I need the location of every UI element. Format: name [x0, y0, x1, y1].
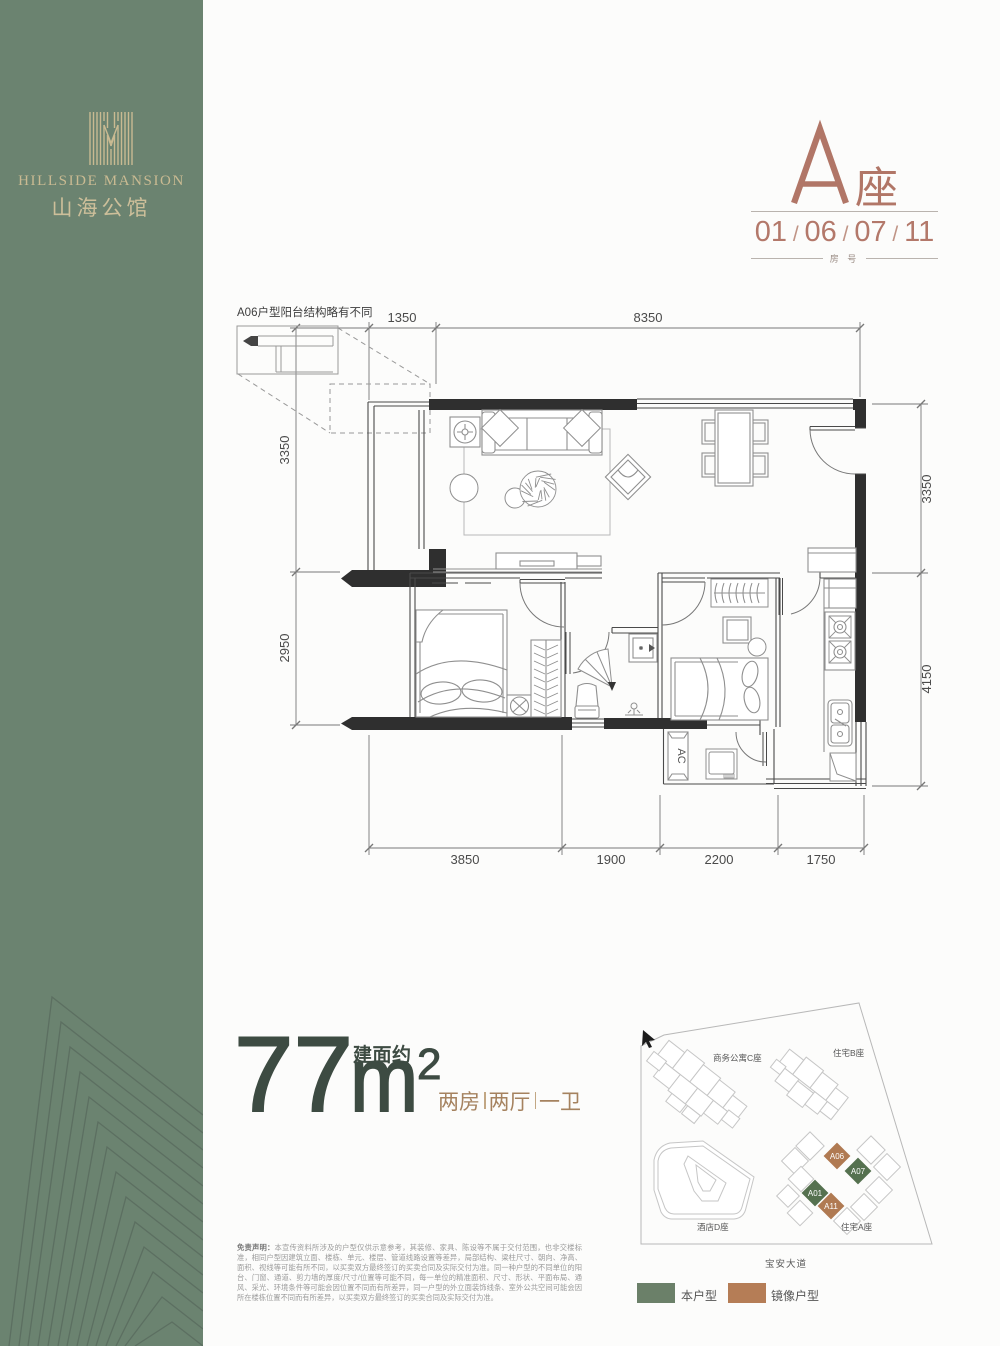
svg-text:4150: 4150 — [919, 665, 934, 694]
svg-text:2200: 2200 — [705, 852, 734, 867]
svg-text:A01: A01 — [808, 1189, 823, 1198]
svg-text:1350: 1350 — [388, 310, 417, 325]
svg-text:3350: 3350 — [919, 475, 934, 504]
svg-text:商务公寓C座: 商务公寓C座 — [713, 1053, 762, 1063]
svg-text:1750: 1750 — [807, 852, 836, 867]
svg-text:A11: A11 — [824, 1202, 838, 1211]
svg-text:A06: A06 — [830, 1152, 845, 1161]
svg-text:2950: 2950 — [277, 634, 292, 663]
svg-text:3350: 3350 — [277, 436, 292, 465]
svg-text:A07: A07 — [851, 1167, 866, 1176]
svg-text:酒店D座: 酒店D座 — [697, 1222, 729, 1232]
svg-text:8350: 8350 — [634, 310, 663, 325]
svg-text:3850: 3850 — [451, 852, 480, 867]
svg-text:A06户型阳台结构略有不同: A06户型阳台结构略有不同 — [237, 305, 372, 319]
svg-text:1900: 1900 — [597, 852, 626, 867]
svg-text:住宅B座: 住宅B座 — [833, 1048, 865, 1058]
svg-text:AC: AC — [675, 748, 687, 763]
svg-text:住宅A座: 住宅A座 — [841, 1222, 873, 1232]
